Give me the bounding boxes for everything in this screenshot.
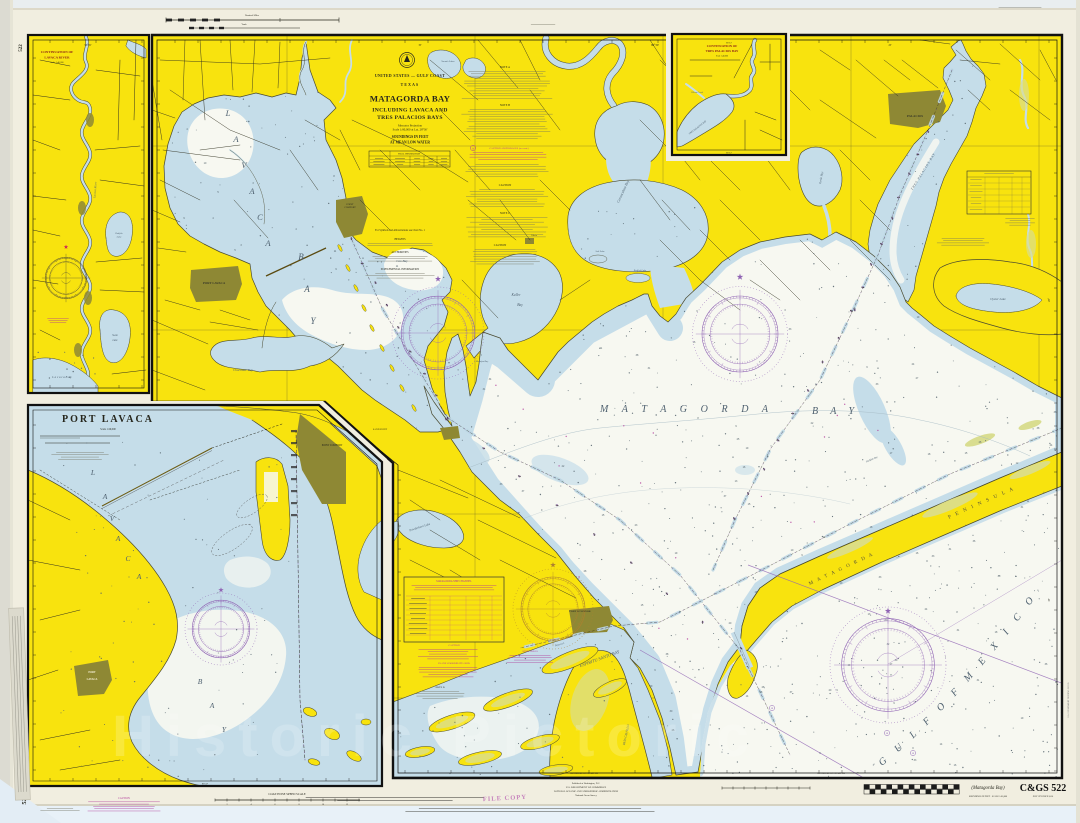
svg-text:CAUTION: CAUTION <box>448 644 459 647</box>
svg-text:A: A <box>115 534 121 543</box>
svg-text:12: 12 <box>346 804 348 806</box>
svg-text:Menefee Bay: Menefee Bay <box>475 360 489 363</box>
svg-text:NOTE B: NOTE B <box>500 104 510 107</box>
svg-text:National Ocean Survey: National Ocean Survey <box>575 795 597 797</box>
svg-text:2: 2 <box>226 804 227 806</box>
svg-text:LAVACA RIVER: LAVACA RIVER <box>44 56 70 60</box>
svg-text:Historic Pictoric: Historic Pictoric <box>112 704 761 769</box>
svg-text:AT MEAN LOW WATER: AT MEAN LOW WATER <box>390 141 430 145</box>
svg-text:CAUTION: CAUTION <box>118 797 130 800</box>
svg-text:(Matagorda Bay): (Matagorda Bay) <box>971 786 1005 791</box>
svg-text:CONTINUATION OF: CONTINUATION OF <box>41 50 73 54</box>
svg-text:Redfish Lake: Redfish Lake <box>633 269 646 272</box>
svg-text:35': 35' <box>1048 598 1051 602</box>
svg-text:HEIGHTS: HEIGHTS <box>394 238 406 241</box>
svg-text:Scale 1:40,000: Scale 1:40,000 <box>716 56 728 58</box>
svg-text:PLANE COORDINATE GRID: PLANE COORDINATE GRID <box>438 662 470 665</box>
svg-text:C&GS 522: C&GS 522 <box>1020 783 1066 794</box>
svg-text:NOTE A: NOTE A <box>500 66 510 69</box>
svg-text:PORT: PORT <box>88 671 96 674</box>
svg-text:L: L <box>90 468 95 477</box>
svg-text:L a v a c a B a y: L a v a c a B a y <box>51 375 72 379</box>
svg-text:A: A <box>232 134 239 144</box>
svg-text:JULY 1973 PRICE $1.50: JULY 1973 PRICE $1.50 <box>1033 795 1053 798</box>
svg-text:CONTINUED ON CHART 893: CONTINUED ON CHART 893 <box>817 772 846 775</box>
svg-text:Chocolate Bay: Chocolate Bay <box>233 368 254 372</box>
svg-text:Cox Bay: Cox Bay <box>396 259 408 263</box>
svg-text:A: A <box>136 572 142 581</box>
svg-text:Lake: Lake <box>116 236 122 239</box>
svg-text:AUTHORITIES: AUTHORITIES <box>391 251 409 254</box>
svg-text:For Symbols and Abbreviations: For Symbols and Abbreviations see Chart … <box>375 229 425 232</box>
svg-text:MATAGORDA SHIP CHANNEL: MATAGORDA SHIP CHANNEL <box>436 580 472 583</box>
svg-text:L: L <box>225 108 231 118</box>
svg-text:C: C <box>257 212 263 222</box>
svg-text:SPOIL AREAS: SPOIL AREAS <box>522 650 538 653</box>
svg-text:CAUTION: CAUTION <box>499 184 512 187</box>
svg-text:28°: 28° <box>1048 298 1051 302</box>
svg-text:INCLUDING LAVACA AND: INCLUDING LAVACA AND <box>372 108 447 114</box>
svg-text:96°37': 96°37' <box>202 783 209 786</box>
svg-text:NOTE D: NOTE D <box>435 686 444 689</box>
svg-text:NATIONAL OCEANIC AND ATMOSPHER: NATIONAL OCEANIC AND ATMOSPHERIC ADMINIS… <box>554 790 619 793</box>
svg-text:96°30': 96°30' <box>651 43 659 47</box>
svg-text:Bay: Bay <box>517 303 523 307</box>
svg-text:Yards: Yards <box>241 24 246 26</box>
svg-text:522: 522 <box>19 44 24 52</box>
svg-text:Swan: Swan <box>112 334 118 337</box>
svg-text:M A T A G O R D A: M A T A G O R D A <box>599 404 769 415</box>
svg-text:96°35': 96°35' <box>85 44 92 47</box>
svg-text:CAUTION ANCHORAGES (see note: CAUTION ANCHORAGES (see note) <box>489 147 528 150</box>
svg-text:96°12': 96°12' <box>726 42 732 45</box>
svg-text:96°12': 96°12' <box>726 152 732 155</box>
svg-text:Keller: Keller <box>511 293 522 297</box>
svg-text:Olivia: Olivia <box>531 234 538 237</box>
svg-text:PORT LAVACA: PORT LAVACA <box>62 414 154 425</box>
svg-text:LAVACA: LAVACA <box>87 678 98 681</box>
svg-text:Scale 1:20,000: Scale 1:20,000 <box>100 428 116 431</box>
svg-text:COASTWISE SPEED SCALE: COASTWISE SPEED SCALE <box>268 792 306 796</box>
svg-text:Wilson Creek: Wilson Creek <box>691 92 703 94</box>
svg-text:UNITED STATES — GULF COAST: UNITED STATES — GULF COAST <box>375 74 445 78</box>
svg-text:TRES PALACIOS BAYS: TRES PALACIOS BAYS <box>377 115 443 121</box>
svg-text:SOUNDINGS IN FEET · SCALE 1:: SOUNDINGS IN FEET · SCALE 1:80,000 <box>969 795 1008 798</box>
svg-text:B: B <box>198 677 203 686</box>
svg-text:25': 25' <box>888 44 892 47</box>
svg-text:PALACIOS: PALACIOS <box>907 114 923 118</box>
svg-text:Nautical Miles: Nautical Miles <box>245 14 259 17</box>
svg-text:Salt Lake: Salt Lake <box>596 250 605 253</box>
svg-text:CONTINUATION OF: CONTINUATION OF <box>707 44 738 48</box>
svg-text:U.S. GOVERNMENT PRINTING OFFIC: U.S. GOVERNMENT PRINTING OFFICE <box>1068 682 1070 718</box>
svg-text:COMFORT: COMFORT <box>344 206 356 209</box>
svg-text:B: B <box>298 252 304 262</box>
svg-text:CAUTION: CAUTION <box>494 244 507 247</box>
svg-text:A: A <box>303 284 310 294</box>
svg-text:Oyster Lake: Oyster Lake <box>990 297 1006 301</box>
svg-text:SOUNDINGS IN FEET: SOUNDINGS IN FEET <box>392 135 429 139</box>
svg-text:SAND POINT: SAND POINT <box>373 428 388 431</box>
svg-text:TIDAL INFORMATION: TIDAL INFORMATION <box>398 153 421 156</box>
svg-text:PORT O'CONNOR: PORT O'CONNOR <box>569 610 590 613</box>
svg-text:A: A <box>264 238 271 248</box>
svg-text:A: A <box>248 186 255 196</box>
svg-text:PORT LAVACA: PORT LAVACA <box>203 281 226 285</box>
svg-text:Published at Washington, D.C.: Published at Washington, D.C. <box>572 782 601 785</box>
svg-text:35': 35' <box>418 44 422 47</box>
svg-text:Venado Lakes: Venado Lakes <box>441 60 454 63</box>
svg-text:MATAGORDA BAY: MATAGORDA BAY <box>370 94 451 104</box>
svg-text:Scale 1:40,000: Scale 1:40,000 <box>50 62 64 64</box>
svg-text:NOTE C: NOTE C <box>500 212 510 215</box>
svg-text:U.S. DEPARTMENT OF COMMERCE: U.S. DEPARTMENT OF COMMERCE <box>566 786 607 789</box>
svg-text:POINT COMFORT: POINT COMFORT <box>322 444 343 447</box>
svg-text:CONTINUED ON CHART 892: CONTINUED ON CHART 892 <box>570 772 598 775</box>
svg-text:Lake: Lake <box>111 339 118 342</box>
svg-text:SUPPLEMENTAL INFORMATION: SUPPLEMENTAL INFORMATION <box>381 268 420 271</box>
svg-text:A: A <box>102 492 108 501</box>
svg-text:TEXAS: TEXAS <box>401 83 420 87</box>
svg-text:TRES PALACIOS BAY: TRES PALACIOS BAY <box>706 49 739 53</box>
